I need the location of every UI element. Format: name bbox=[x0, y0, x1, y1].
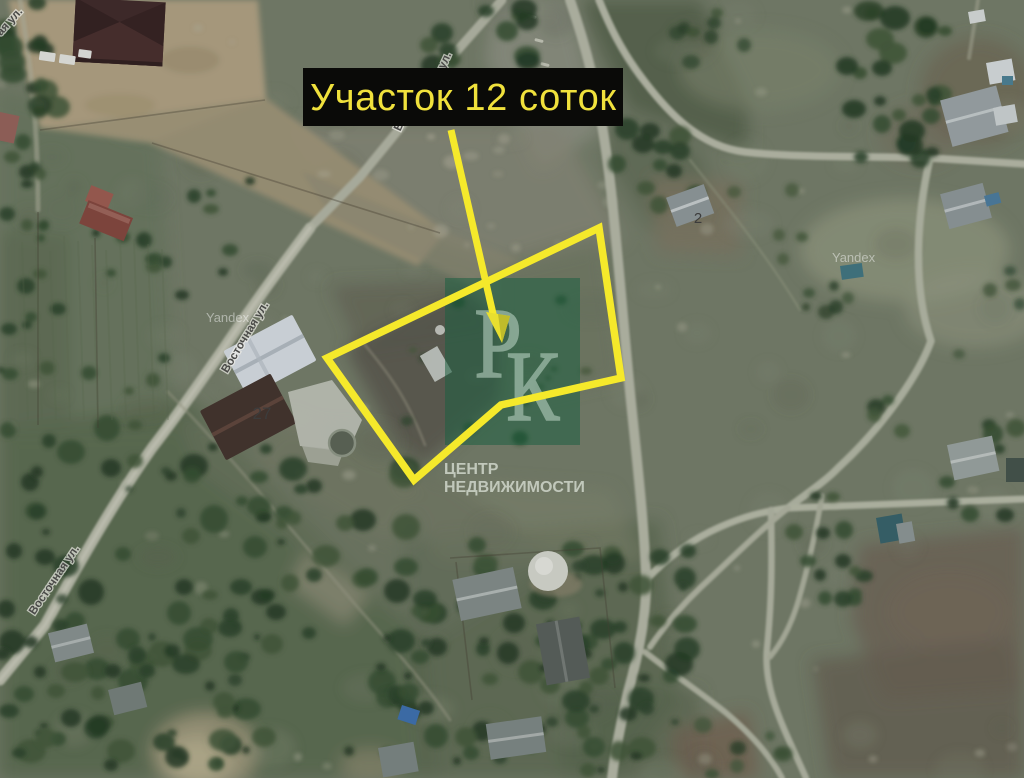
svg-text:Yandex: Yandex bbox=[832, 250, 876, 265]
svg-text:Yandex: Yandex bbox=[206, 310, 250, 325]
svg-text:ЦЕНТР: ЦЕНТР bbox=[444, 461, 499, 478]
svg-text:НЕДВИЖИМОСТИ: НЕДВИЖИМОСТИ bbox=[444, 479, 585, 496]
svg-text:2: 2 bbox=[694, 210, 702, 227]
svg-text:К: К bbox=[506, 330, 560, 443]
svg-text:Участок 12 соток: Участок 12 соток bbox=[310, 77, 616, 119]
svg-text:27: 27 bbox=[253, 404, 272, 423]
